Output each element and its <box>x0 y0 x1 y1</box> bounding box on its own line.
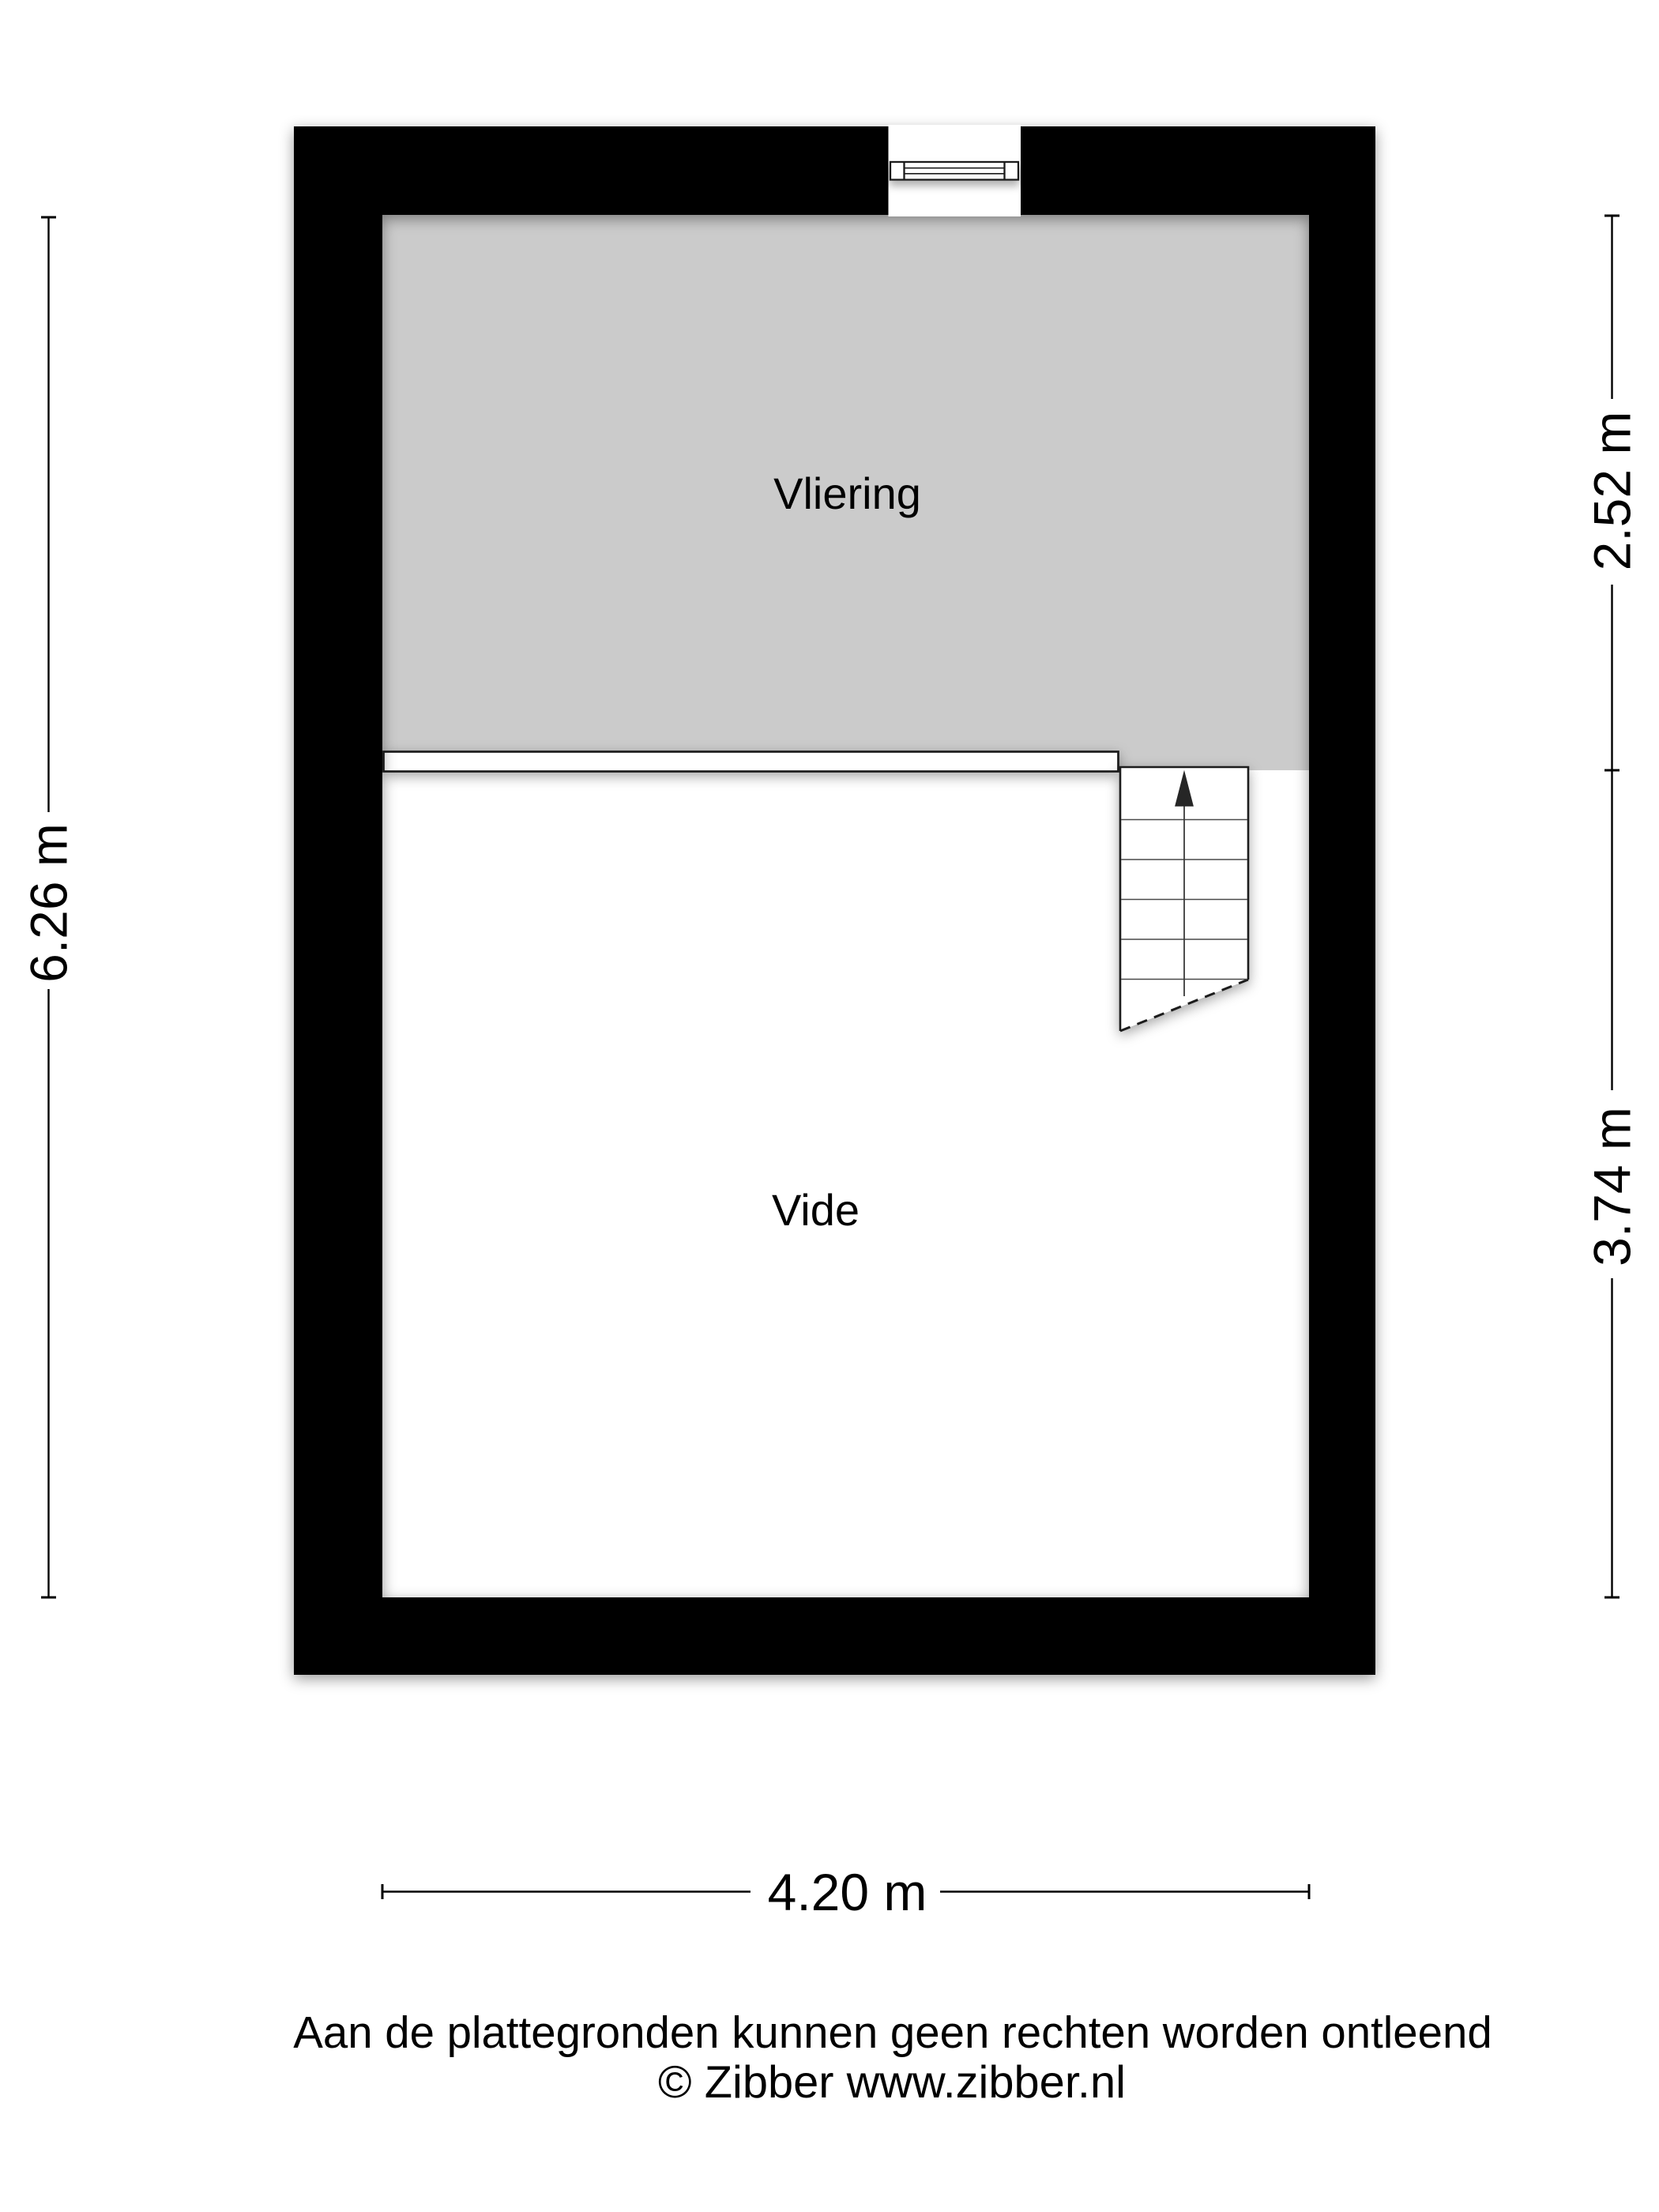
svg-text:Vliering: Vliering <box>773 468 921 518</box>
svg-text:Vide: Vide <box>772 1185 860 1235</box>
svg-text:2.52 m: 2.52 m <box>1583 412 1642 571</box>
svg-text:3.74 m: 3.74 m <box>1583 1107 1642 1266</box>
svg-text:4.20 m: 4.20 m <box>768 1863 927 1921</box>
svg-text:© Zibber www.zibber.nl: © Zibber www.zibber.nl <box>658 2057 1126 2108</box>
svg-text:Aan de plattegronden kunnen ge: Aan de plattegronden kunnen geen rechten… <box>293 2007 1492 2057</box>
svg-text:6.26 m: 6.26 m <box>20 823 78 983</box>
